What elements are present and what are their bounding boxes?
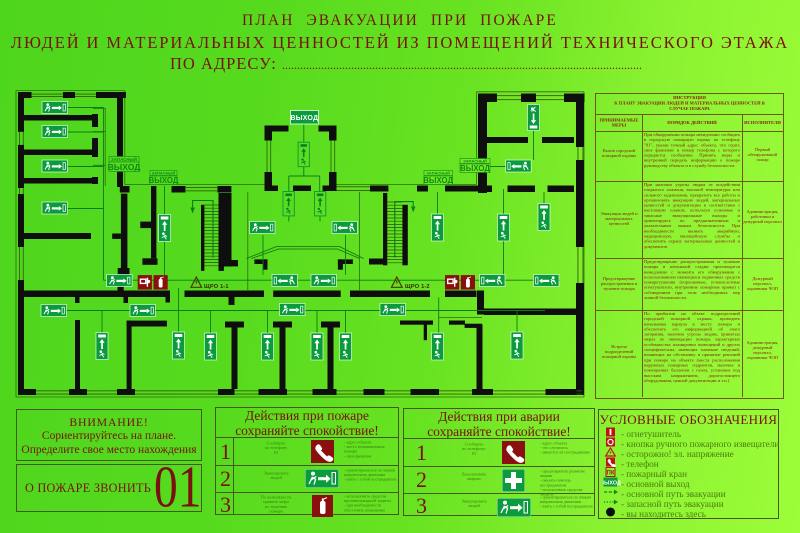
svg-text:ПК: ПК <box>607 470 615 476</box>
svg-text:ВЫХОД: ВЫХОД <box>149 176 179 185</box>
svg-text:ВЫХОД: ВЫХОД <box>423 176 453 185</box>
svg-text:ВЫХОД: ВЫХОД <box>460 164 490 173</box>
svg-text:ЗАПАСНЫЙ: ЗАПАСНЫЙ <box>463 159 487 164</box>
svg-text:ЩРО 1-1: ЩРО 1-1 <box>204 284 229 290</box>
svg-text:ВЫХОД: ВЫХОД <box>603 480 621 486</box>
svg-text:ЗАПАСНЫЙ: ЗАПАСНЫЙ <box>426 171 450 176</box>
svg-text:ВЫХОД: ВЫХОД <box>108 162 141 172</box>
svg-text:ЗАПАСНЫЙ: ЗАПАСНЫЙ <box>152 171 176 176</box>
svg-text:ЩРО 1-2: ЩРО 1-2 <box>405 284 430 290</box>
svg-text:ВЫХОД: ВЫХОД <box>290 115 318 122</box>
